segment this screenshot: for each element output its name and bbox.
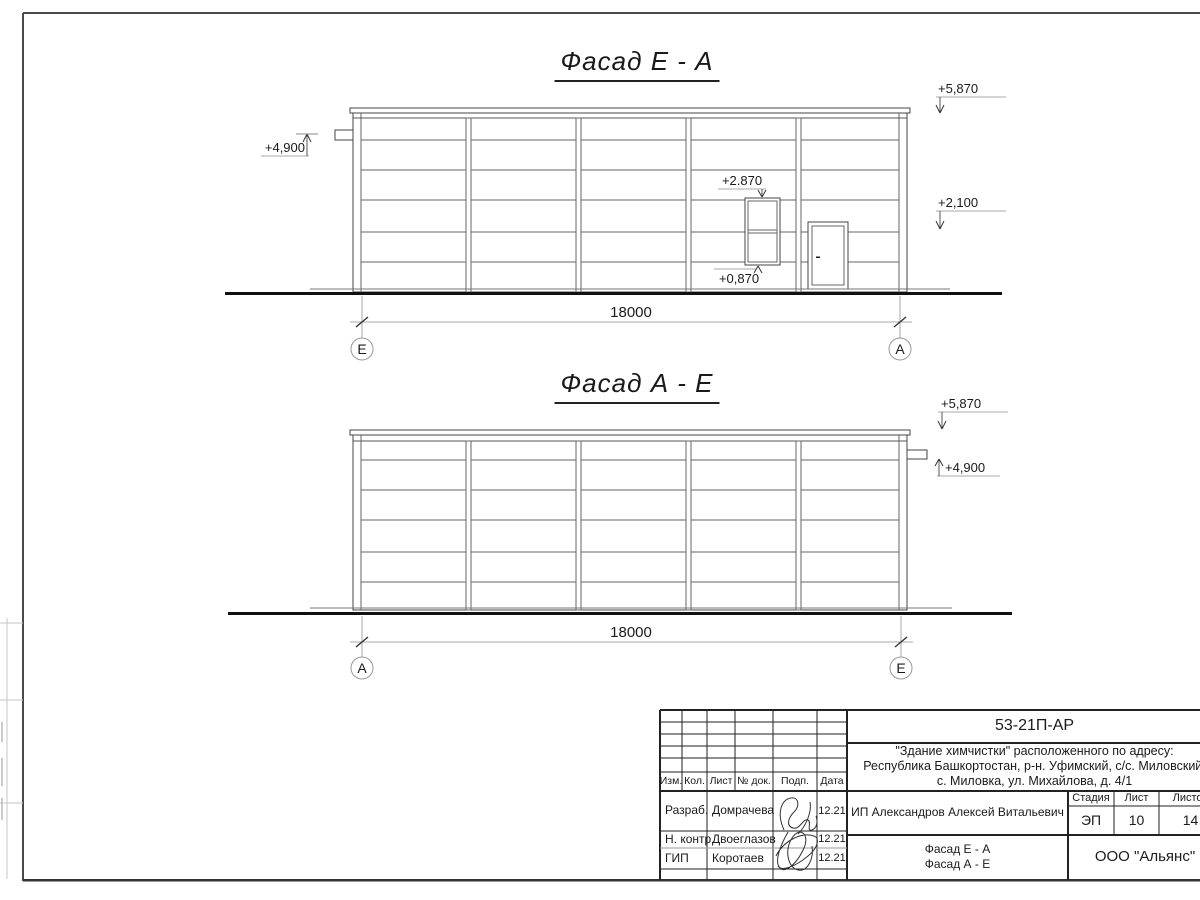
dimension-text: 18000 bbox=[610, 304, 652, 321]
project-line-1: "Здание химчистки" расположенного по адр… bbox=[895, 744, 1173, 759]
mullion bbox=[466, 441, 471, 610]
doc-number: 53-21П-АР bbox=[847, 710, 1200, 743]
elevation-mark-text: +4,900 bbox=[945, 460, 985, 475]
left-margin-stamp bbox=[0, 618, 23, 879]
project-line-2: Республика Башкортостан, р-н. Уфимский, … bbox=[863, 759, 1200, 774]
wall-bracket bbox=[907, 450, 927, 459]
project-address: "Здание химчистки" расположенного по адр… bbox=[847, 743, 1200, 790]
project-line-3: с. Миловка, ул. Михайлова, д. 4/1 bbox=[937, 774, 1132, 789]
stage-value: ЭП bbox=[1068, 806, 1114, 835]
axis-letter: Е bbox=[357, 341, 366, 357]
signature-koro-dvoe bbox=[776, 832, 817, 870]
staff-role-gip: ГИП bbox=[662, 848, 710, 869]
mullion bbox=[576, 118, 581, 292]
mullion bbox=[686, 441, 691, 610]
rev-header-list: Лист bbox=[707, 772, 735, 791]
staff-name-razrab: Домрачева bbox=[709, 791, 776, 831]
rev-header-ndok: № док. bbox=[735, 772, 773, 791]
facade-ae-drawing: 18000 А Е +5,870 +4,900 bbox=[228, 396, 1012, 679]
staff-role-razrab: Разраб. bbox=[662, 791, 710, 831]
staff-date-razrab: 12.21 bbox=[817, 791, 847, 831]
organization-name: ООО "Альянс" bbox=[1068, 835, 1200, 879]
axis-letter: А bbox=[357, 660, 367, 676]
rev-header-izm: Изм. bbox=[660, 772, 682, 791]
sheet-label: Лист bbox=[1114, 790, 1159, 806]
sheets-label: Листов bbox=[1159, 790, 1200, 806]
rev-header-data: Дата bbox=[817, 772, 847, 791]
mullion bbox=[466, 118, 471, 292]
sheets-value: 14 bbox=[1159, 806, 1200, 835]
sheet-content-line-1: Фасад Е - А bbox=[925, 842, 990, 857]
sheet-value: 10 bbox=[1114, 806, 1159, 835]
elevation-mark-text: +4,900 bbox=[265, 140, 305, 155]
facade-ae-title: Фасад А - Е bbox=[555, 368, 720, 404]
sheet-content-line-2: Фасад А - Е bbox=[925, 857, 990, 872]
elevation-mark-text: +2,100 bbox=[938, 195, 978, 210]
stage-label: Стадия bbox=[1068, 790, 1114, 806]
mullion bbox=[686, 118, 691, 292]
staff-date-nkontr: 12.21 bbox=[817, 831, 847, 848]
mullion bbox=[576, 441, 581, 610]
signature-domracheva bbox=[780, 798, 817, 834]
signatures bbox=[776, 798, 817, 870]
rev-header-podp: Подп. bbox=[773, 772, 817, 791]
drawing-sheet: { "sheet": { "views": [ { "title": "Фаса… bbox=[0, 0, 1200, 900]
mullion bbox=[796, 118, 801, 292]
staff-role-nkontr: Н. контр. bbox=[662, 831, 710, 848]
facade-ea-title: Фасад Е - А bbox=[555, 46, 720, 82]
staff-name-nkontr: Двоеглазов bbox=[709, 831, 776, 848]
axis-letter: Е bbox=[896, 660, 905, 676]
window bbox=[745, 198, 780, 265]
rev-header-kol: Кол. bbox=[682, 772, 707, 791]
axis-letter: А bbox=[895, 341, 905, 357]
dimension-text: 18000 bbox=[610, 624, 652, 641]
staff-date-gip: 12.21 bbox=[817, 848, 847, 869]
elevation-mark-text: +5,870 bbox=[938, 81, 978, 96]
mullion bbox=[796, 441, 801, 610]
elevation-mark-text: +0,870 bbox=[719, 271, 759, 286]
client-name: ИП Александров Алексей Витальевич bbox=[847, 791, 1068, 835]
sheet-content: Фасад Е - А Фасад А - Е bbox=[847, 835, 1068, 879]
door bbox=[808, 222, 848, 289]
elevation-mark-text: +5,870 bbox=[941, 396, 981, 411]
elevation-mark-text: +2.870 bbox=[722, 173, 762, 188]
facade-ea-drawing: 18000 Е А bbox=[225, 81, 1006, 360]
staff-name-gip: Коротаев bbox=[709, 848, 776, 869]
wall-bracket bbox=[335, 130, 353, 140]
